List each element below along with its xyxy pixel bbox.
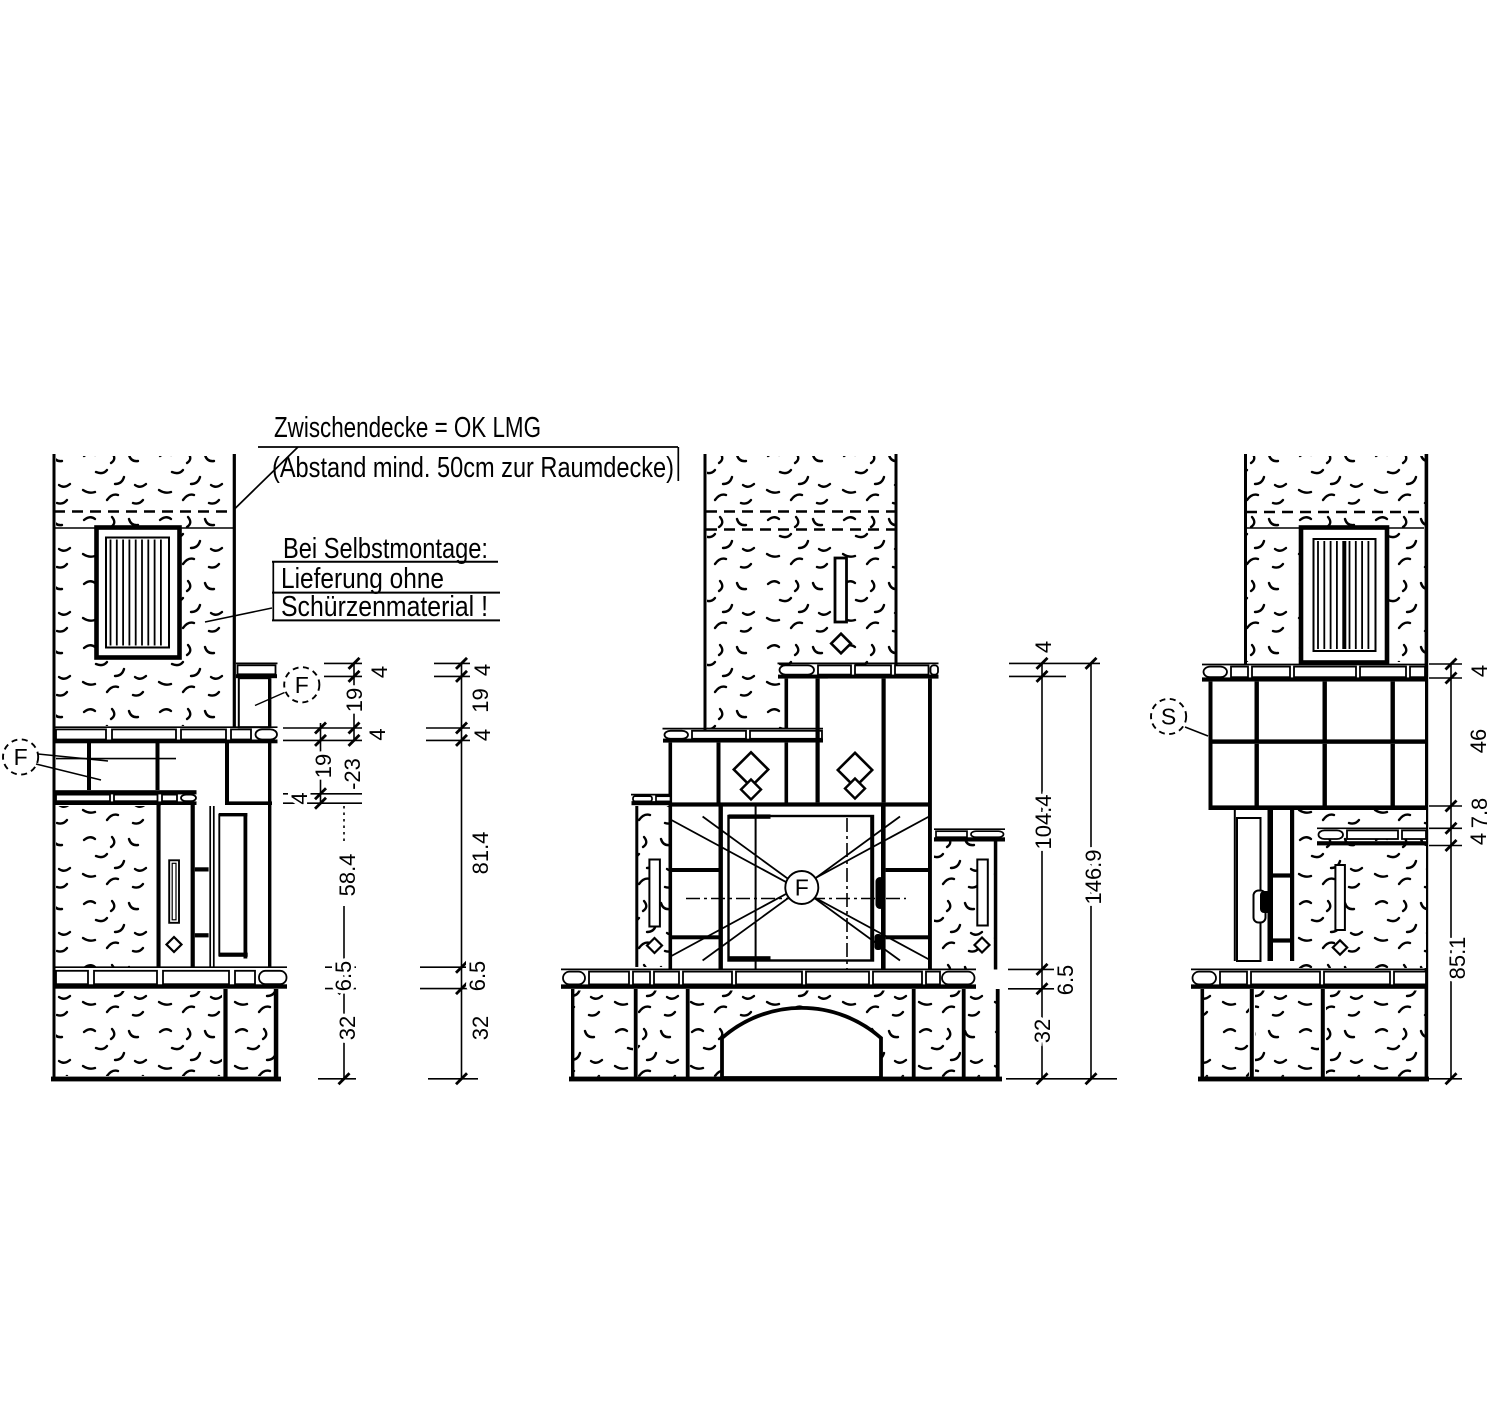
svg-text:-23: -23 xyxy=(340,758,365,790)
svg-text:32: 32 xyxy=(1030,1019,1055,1043)
svg-text:6.5: 6.5 xyxy=(1053,965,1078,996)
svg-text:32: 32 xyxy=(468,1016,493,1040)
svg-text:Schürzenmaterial !: Schürzenmaterial ! xyxy=(281,591,488,623)
svg-text:19: 19 xyxy=(342,688,367,712)
svg-text:146.9: 146.9 xyxy=(1081,849,1106,904)
svg-text:(Abstand mind. 50cm zur Raumde: (Abstand mind. 50cm zur Raumdecke) xyxy=(272,452,674,484)
svg-text:32: 32 xyxy=(335,1016,360,1040)
svg-text:4: 4 xyxy=(1031,641,1056,653)
svg-text:104.4: 104.4 xyxy=(1031,794,1056,849)
svg-text:Bei Selbstmontage:: Bei Selbstmontage: xyxy=(283,533,488,565)
svg-text:46: 46 xyxy=(1466,729,1491,753)
svg-text:6.5: 6.5 xyxy=(331,961,356,992)
svg-text:4: 4 xyxy=(1467,665,1492,677)
svg-text:S: S xyxy=(1161,704,1176,730)
svg-text:4: 4 xyxy=(470,664,495,676)
svg-text:19: 19 xyxy=(311,754,336,778)
svg-text:19: 19 xyxy=(468,688,493,712)
svg-text:F: F xyxy=(295,672,309,698)
svg-text:Zwischendecke = OK LMG: Zwischendecke = OK LMG xyxy=(274,412,541,444)
svg-text:81.4: 81.4 xyxy=(468,832,493,875)
svg-text:F: F xyxy=(795,875,809,901)
svg-text:6.5: 6.5 xyxy=(465,961,490,992)
svg-text:4: 4 xyxy=(287,792,312,804)
svg-text:F: F xyxy=(14,744,28,770)
svg-text:4: 4 xyxy=(470,729,495,741)
svg-text:4: 4 xyxy=(1466,833,1491,845)
svg-text:58.4: 58.4 xyxy=(335,854,360,897)
svg-text:7.8: 7.8 xyxy=(1467,798,1492,829)
svg-text:85.1: 85.1 xyxy=(1445,937,1470,980)
svg-text:4: 4 xyxy=(365,728,390,740)
svg-text:4: 4 xyxy=(367,666,392,678)
